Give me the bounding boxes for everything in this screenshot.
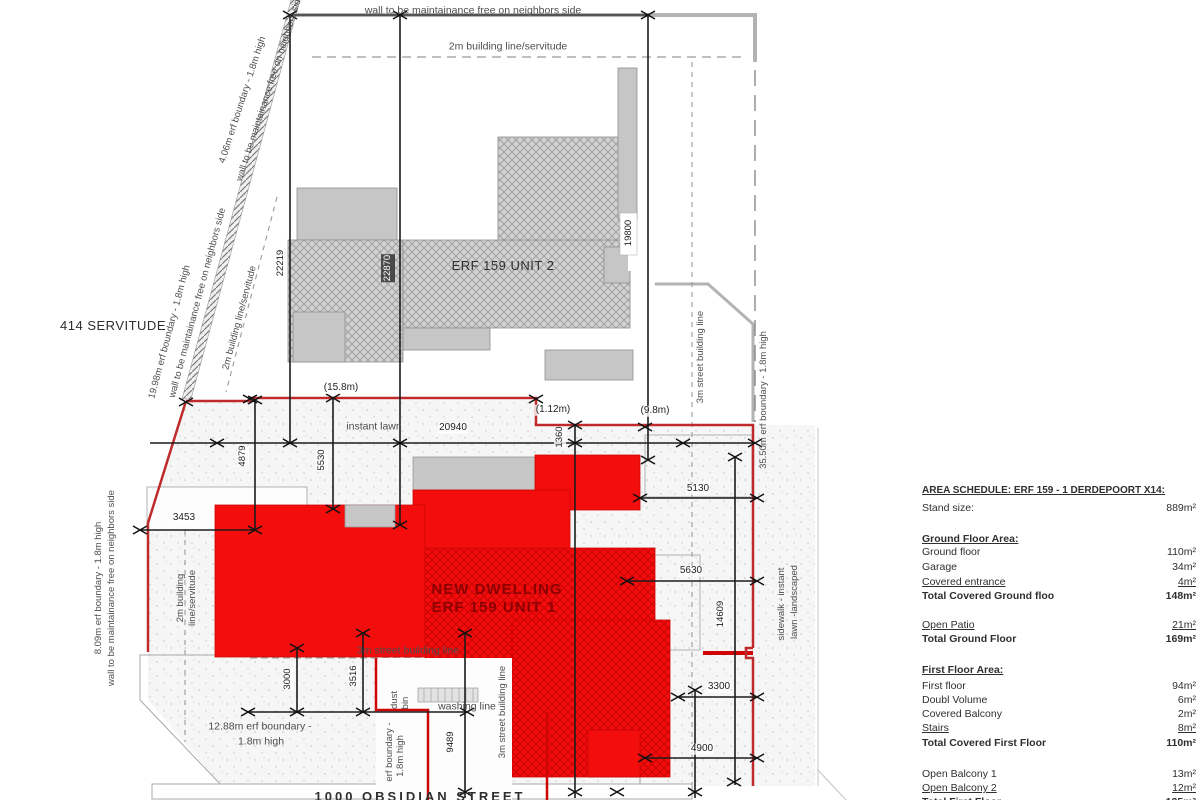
schedule-row-total-ground: Total Ground Floor 169m² bbox=[922, 633, 1196, 645]
row-value: 34m² bbox=[1172, 561, 1196, 573]
unit1-label-line1: NEW DWELLING bbox=[431, 582, 562, 598]
schedule-row-total-covered-ground: Total Covered Ground floo 148m² bbox=[922, 590, 1196, 602]
schedule-row-total-covered-first: Total Covered First Floor 110m² bbox=[922, 737, 1196, 749]
note-wall-top: wall to be maintainance free on neighbor… bbox=[365, 5, 582, 16]
row-value: 169m² bbox=[1166, 633, 1196, 645]
row-value: 12m² bbox=[1172, 782, 1196, 794]
row-value: 135m² bbox=[1166, 796, 1196, 800]
dim-3300: 3300 bbox=[707, 682, 731, 693]
schedule-row-total-first: Total First Floor 135m² bbox=[922, 796, 1196, 800]
schedule-title: AREA SCHEDULE: ERF 159 - 1 DERDEPOORT X1… bbox=[922, 485, 1196, 496]
row-value: 6m² bbox=[1178, 694, 1196, 706]
row-label: Total Covered First Floor bbox=[922, 737, 1046, 749]
row-value: 4m² bbox=[1178, 576, 1196, 588]
row-label: Total Covered Ground floo bbox=[922, 590, 1054, 602]
dim-3453: 3453 bbox=[172, 513, 196, 524]
dim-5530: 5530 bbox=[316, 449, 328, 470]
schedule-row-open-balcony-2: Open Balcony 2 12m² bbox=[922, 782, 1196, 794]
row-value: 8m² bbox=[1178, 722, 1196, 734]
dim-9489: 9489 bbox=[445, 731, 457, 752]
row-label: Total First Floor bbox=[922, 796, 1001, 800]
schedule-row-stairs: Stairs 8m² bbox=[922, 722, 1196, 734]
schedule-row-open-patio: Open Patio 21m² bbox=[922, 619, 1196, 631]
dim-3000: 3000 bbox=[282, 668, 294, 689]
street-name: 1000 OBSIDIAN STREET bbox=[315, 790, 526, 800]
dim-19800: 19800 bbox=[623, 220, 635, 246]
schedule-row-stand: Stand size: 889m² bbox=[922, 502, 1196, 514]
row-value: 889m² bbox=[1166, 502, 1196, 514]
unit2-label: ERF 159 UNIT 2 bbox=[452, 259, 555, 273]
schedule-ground-header: Ground Floor Area: bbox=[922, 533, 1196, 545]
row-label: Stairs bbox=[922, 722, 949, 734]
row-value: 2m² bbox=[1178, 708, 1196, 720]
unit2-building bbox=[288, 68, 640, 380]
row-value: 110m² bbox=[1167, 546, 1196, 558]
note-boundary-1288-2: 1.8m high bbox=[238, 736, 284, 747]
row-label: Open Patio bbox=[922, 619, 975, 631]
schedule-row-first-floor: First floor 94m² bbox=[922, 680, 1196, 692]
row-label: First floor bbox=[922, 680, 966, 692]
dim-9-8m: (9.8m) bbox=[640, 406, 671, 417]
row-label: Covered entrance bbox=[922, 576, 1005, 588]
note-street-bl-right-v: 3m street building line bbox=[498, 666, 508, 758]
note-building-line-2m-top: 2m building line/servitude bbox=[449, 41, 567, 52]
note-bl2m-left-2: line/servitude bbox=[188, 570, 198, 626]
schedule-row-double-volume: Doubl Volume 6m² bbox=[922, 694, 1196, 706]
row-label: Ground floor bbox=[922, 546, 980, 558]
row-value: 21m² bbox=[1172, 619, 1196, 631]
servitude-label: 414 SERVITUDE bbox=[60, 319, 166, 333]
note-street-bl-bottom: 3m street building line bbox=[357, 645, 459, 656]
row-label: Covered Balcony bbox=[922, 708, 1002, 720]
dim-14609: 14609 bbox=[715, 601, 727, 627]
dim-15-8m: (15.8m) bbox=[323, 383, 359, 394]
row-label: Stand size: bbox=[922, 502, 974, 514]
dim-3516: 3516 bbox=[348, 665, 360, 686]
note-dust-1: dust bbox=[390, 691, 400, 709]
schedule-row-covered-balcony: Covered Balcony 2m² bbox=[922, 708, 1196, 720]
row-label: Doubl Volume bbox=[922, 694, 987, 706]
note-instant-lawn: instant lawn bbox=[346, 421, 401, 432]
note-erf-small-2: 1.8m high bbox=[396, 735, 406, 777]
note-washing-line: washing line bbox=[438, 701, 496, 712]
note-sidewalk-2: lawn -landscaped bbox=[790, 565, 800, 639]
row-label: Open Balcony 1 bbox=[922, 768, 997, 780]
row-value: 110m² bbox=[1166, 737, 1196, 749]
dim-4879: 4879 bbox=[237, 445, 249, 466]
dim-1360: 1360 bbox=[554, 426, 566, 447]
row-label: Open Balcony 2 bbox=[922, 782, 997, 794]
row-label: Garage bbox=[922, 561, 957, 573]
unit1-label-line2: ERF 159 UNIT 1 bbox=[432, 600, 557, 616]
dim-20940: 20940 bbox=[438, 423, 468, 434]
row-value: 94m² bbox=[1172, 680, 1196, 692]
note-left-wall: wall to be maintainance free on neighbor… bbox=[107, 490, 117, 686]
note-left-boundary: 8.09m erf boundary - 1.8m high bbox=[94, 522, 104, 655]
note-boundary-1288-1: 12.88m erf boundary - bbox=[208, 721, 311, 732]
dim-5130: 5130 bbox=[686, 484, 710, 495]
note-boundary-3550: 35.50m erf boundary - 1.8m high bbox=[759, 331, 769, 469]
row-value: 148m² bbox=[1166, 590, 1196, 602]
schedule-row-open-balcony-1: Open Balcony 1 13m² bbox=[922, 768, 1196, 780]
dim-5630: 5630 bbox=[679, 566, 703, 577]
dim-22870: 22870 bbox=[381, 254, 395, 282]
note-bl2m-left-1: 2m building bbox=[176, 574, 186, 623]
note-dust-2: bin bbox=[401, 697, 411, 710]
schedule-first-header: First Floor Area: bbox=[922, 664, 1196, 676]
dim-1-12m: (1.12m) bbox=[535, 405, 571, 416]
schedule-row-covered-entrance: Covered entrance 4m² bbox=[922, 576, 1196, 588]
site-plan: wall to be maintainance free on neighbor… bbox=[0, 0, 1200, 800]
dim-22219: 22219 bbox=[275, 250, 287, 276]
row-label: Total Ground Floor bbox=[922, 633, 1016, 645]
note-sidewalk-1: sidewalk - instant bbox=[777, 568, 787, 641]
schedule-row-garage: Garage 34m² bbox=[922, 561, 1196, 573]
note-erf-small-1: erf boundary - bbox=[385, 722, 395, 781]
schedule-row-ground-floor: Ground floor 110m² bbox=[922, 546, 1196, 558]
dim-4900: 4900 bbox=[690, 744, 714, 755]
note-street-bl-top-v: 3m street building line bbox=[696, 311, 706, 403]
row-value: 13m² bbox=[1172, 768, 1196, 780]
